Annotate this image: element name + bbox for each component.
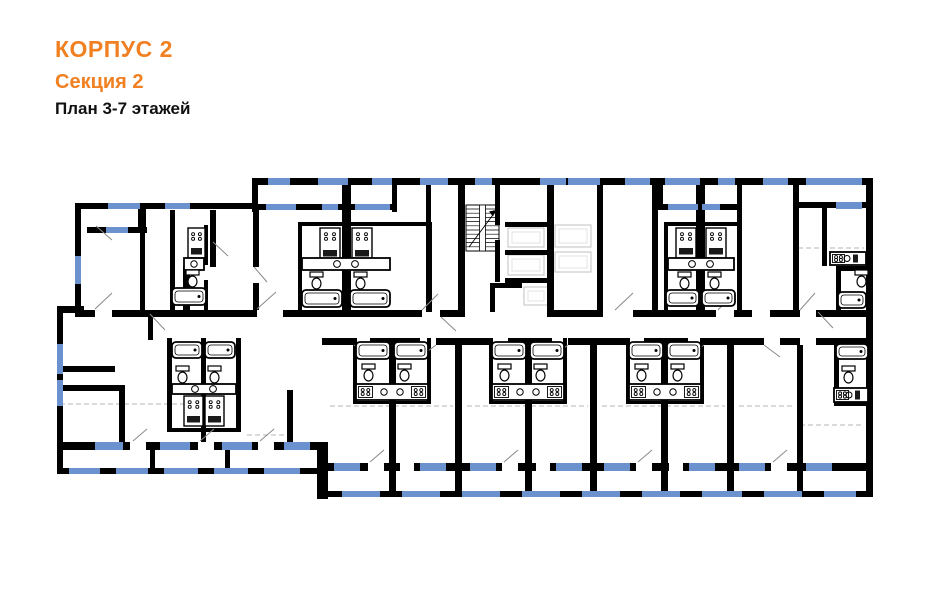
door-swing <box>254 267 267 282</box>
bathtub <box>667 342 701 359</box>
balcony-glazing <box>322 491 873 497</box>
balcony-post <box>100 468 116 474</box>
window <box>556 463 582 471</box>
window <box>57 380 63 406</box>
window <box>95 442 123 450</box>
wall <box>658 178 663 208</box>
wall <box>661 345 668 491</box>
door-swing <box>133 429 147 441</box>
wall <box>633 310 652 317</box>
floors-subtitle: План 3-7 этажей <box>55 99 190 119</box>
wall <box>210 210 216 267</box>
door-swing <box>638 450 652 462</box>
bathtub-drain <box>198 295 201 298</box>
wall <box>167 428 241 432</box>
oven-door <box>187 416 200 423</box>
toilet-tank <box>208 366 221 371</box>
balcony-post <box>198 468 214 474</box>
window <box>420 463 446 471</box>
wall <box>428 222 432 312</box>
bathtub-drain <box>858 299 861 302</box>
toilet-tank <box>855 270 868 275</box>
bathtub <box>702 290 735 306</box>
wall <box>253 210 259 267</box>
toilet-tank <box>671 364 684 369</box>
bathtub <box>205 342 235 358</box>
toilet-tank <box>678 272 691 277</box>
section-title: Секция 2 <box>55 71 190 94</box>
door-opening <box>771 463 787 471</box>
window <box>836 202 862 209</box>
balcony-post <box>500 491 522 497</box>
wall <box>489 401 567 404</box>
window <box>165 203 190 209</box>
bathtub-drain <box>334 297 337 300</box>
door-swing <box>800 293 815 310</box>
wall <box>436 338 492 345</box>
wall <box>458 185 465 317</box>
bathtub-drain <box>194 349 197 352</box>
toilet-tank <box>534 364 547 369</box>
window <box>106 227 128 233</box>
door-opening <box>400 463 414 471</box>
wall <box>392 178 397 212</box>
kitchen-counter <box>184 258 204 270</box>
door-opening <box>368 463 384 471</box>
window <box>355 204 390 210</box>
wall <box>283 310 320 317</box>
wall <box>287 390 293 444</box>
bathtub-drain <box>655 349 658 352</box>
plan-header: КОРПУС 2 Секция 2 План 3-7 этажей <box>55 36 190 119</box>
toilet-bowl <box>536 370 545 381</box>
window <box>334 463 360 471</box>
bathtub-drain <box>420 349 423 352</box>
window <box>604 463 630 471</box>
toilet-tank <box>842 366 855 371</box>
balcony-post <box>802 491 824 497</box>
window <box>266 204 296 210</box>
window <box>625 178 650 185</box>
elevator-cell <box>508 228 544 247</box>
window <box>322 204 338 210</box>
balcony-post <box>322 491 342 497</box>
wall <box>704 338 764 345</box>
door-swing <box>95 293 112 309</box>
balcony-post <box>148 468 164 474</box>
window <box>475 178 492 185</box>
wall <box>505 222 552 227</box>
bathtub <box>629 342 663 359</box>
window <box>689 463 715 471</box>
wall <box>140 231 145 311</box>
wall <box>797 345 803 491</box>
balcony-post <box>57 468 69 474</box>
bathtub <box>356 342 390 359</box>
bathtub <box>530 342 564 359</box>
wall <box>112 310 170 317</box>
stair-stringer <box>480 205 486 251</box>
bathtub <box>394 342 428 359</box>
oven-door <box>679 248 693 255</box>
balcony-post <box>560 491 582 497</box>
wall <box>652 310 716 317</box>
oven-door <box>709 248 723 255</box>
oven-door <box>323 250 337 257</box>
toilet-bowl <box>673 370 682 381</box>
toilet-tank <box>398 364 411 369</box>
wall <box>495 185 500 225</box>
balcony-glazing <box>57 468 323 474</box>
wall <box>626 401 704 404</box>
balcony-post <box>856 491 873 497</box>
oven-door <box>355 250 369 257</box>
bathtub <box>172 288 206 305</box>
counter-dark-module <box>853 255 858 263</box>
toilet-tank <box>635 364 648 369</box>
wall <box>320 310 422 317</box>
door-swing <box>441 317 456 331</box>
toilet-tank <box>362 364 375 369</box>
toilet-bowl <box>400 370 409 381</box>
wall <box>252 178 258 212</box>
toilet-bowl <box>710 278 719 289</box>
wall <box>150 450 155 468</box>
wall <box>737 178 742 312</box>
wall <box>322 338 354 345</box>
wall <box>822 208 827 266</box>
toilet-tank <box>708 272 721 277</box>
wall <box>816 310 866 317</box>
toilet-bowl <box>356 278 365 289</box>
window <box>108 203 140 209</box>
window <box>665 178 700 185</box>
wall <box>495 240 500 282</box>
toilet-bowl <box>364 370 373 381</box>
wall <box>525 345 532 491</box>
wall <box>770 310 800 317</box>
door-opening <box>502 463 518 471</box>
wall <box>664 222 742 226</box>
wall <box>553 310 603 317</box>
window <box>222 442 252 450</box>
toilet-bowl <box>312 278 321 289</box>
wall <box>727 345 734 491</box>
wall <box>780 338 800 345</box>
window <box>702 204 720 210</box>
toilet-tank <box>498 364 511 369</box>
wall <box>298 222 432 226</box>
kitchen-counter <box>302 258 390 270</box>
elevator-cell <box>524 287 548 305</box>
bathtub <box>838 292 866 308</box>
toilet-tank <box>176 366 189 371</box>
kitchen-counter <box>668 258 734 270</box>
wall <box>597 185 603 312</box>
bathtub <box>836 344 868 359</box>
door-opening <box>130 442 146 450</box>
wall <box>119 385 125 445</box>
door-swing <box>504 450 518 462</box>
window <box>75 256 81 284</box>
bathtub-drain <box>227 349 230 352</box>
window <box>372 178 392 185</box>
bathtub <box>666 290 699 306</box>
oven-door <box>208 416 221 423</box>
bathtub-drain <box>518 349 521 352</box>
window <box>420 178 448 185</box>
balcony-post <box>380 491 402 497</box>
window <box>160 442 190 450</box>
window <box>540 178 566 185</box>
wall <box>57 366 115 372</box>
counter-dark-module <box>855 391 860 400</box>
balcony-post <box>300 468 323 474</box>
balcony-post <box>248 468 264 474</box>
window <box>806 463 832 471</box>
toilet-bowl <box>178 372 187 383</box>
wall <box>389 345 396 491</box>
window <box>470 463 496 471</box>
wall <box>490 283 522 288</box>
balcony-post <box>680 491 702 497</box>
window <box>318 178 348 185</box>
door-swing <box>764 345 780 357</box>
door-swing <box>615 293 633 310</box>
toilet-bowl <box>210 372 219 383</box>
toilet-bowl <box>857 276 866 287</box>
toilet-bowl <box>500 370 509 381</box>
door-opening <box>669 463 683 471</box>
wall <box>568 338 628 345</box>
elevator-cell <box>555 225 591 247</box>
toilet-bowl <box>637 370 646 381</box>
wall <box>440 310 458 317</box>
toilet-bowl <box>844 372 853 383</box>
wall <box>63 385 123 391</box>
door-swing <box>370 450 384 462</box>
building-title: КОРПУС 2 <box>55 36 190 63</box>
wall <box>505 250 552 255</box>
toilet-tank <box>354 272 367 277</box>
bathtub <box>492 342 526 359</box>
wall <box>455 345 462 491</box>
wall <box>170 310 257 317</box>
window <box>763 178 788 185</box>
wall <box>505 278 552 283</box>
door-swing <box>773 450 787 462</box>
door-swing <box>257 292 276 309</box>
wall <box>866 178 873 497</box>
balcony-post <box>440 491 462 497</box>
wall <box>590 345 597 491</box>
kitchen-counter <box>172 384 236 394</box>
wall <box>652 185 658 312</box>
window <box>284 442 310 450</box>
window <box>806 178 862 185</box>
toilet-tank <box>186 270 199 275</box>
wall <box>253 283 259 310</box>
floor-plan-page: КОРПУС 2 Секция 2 План 3-7 этажей <box>0 0 941 600</box>
bathtub-drain <box>860 350 863 353</box>
door-opening <box>258 442 274 450</box>
balcony-post <box>742 491 764 497</box>
door-opening <box>536 463 550 471</box>
bathtub-drain <box>727 297 730 300</box>
wall <box>225 450 230 468</box>
bathtub-drain <box>693 349 696 352</box>
door-opening <box>636 463 652 471</box>
elevator-cell <box>508 255 544 275</box>
door-opening <box>198 442 214 450</box>
toilet-tank <box>310 272 323 277</box>
wall <box>75 310 95 317</box>
wall <box>793 178 799 312</box>
elevator-cell <box>555 252 591 272</box>
window <box>668 204 698 210</box>
window <box>57 344 63 374</box>
window <box>739 463 765 471</box>
bathtub-drain <box>556 349 559 352</box>
toilet-bowl <box>188 276 197 287</box>
wall <box>353 401 431 404</box>
oven-door <box>191 248 202 255</box>
window <box>718 178 735 185</box>
bathtub-drain <box>382 297 385 300</box>
bathtub-drain <box>382 349 385 352</box>
window <box>268 178 290 185</box>
wall <box>734 310 752 317</box>
bathtub <box>172 342 202 358</box>
toilet-bowl <box>680 278 689 289</box>
bathtub-drain <box>691 297 694 300</box>
window <box>568 178 600 185</box>
balcony-post <box>620 491 642 497</box>
